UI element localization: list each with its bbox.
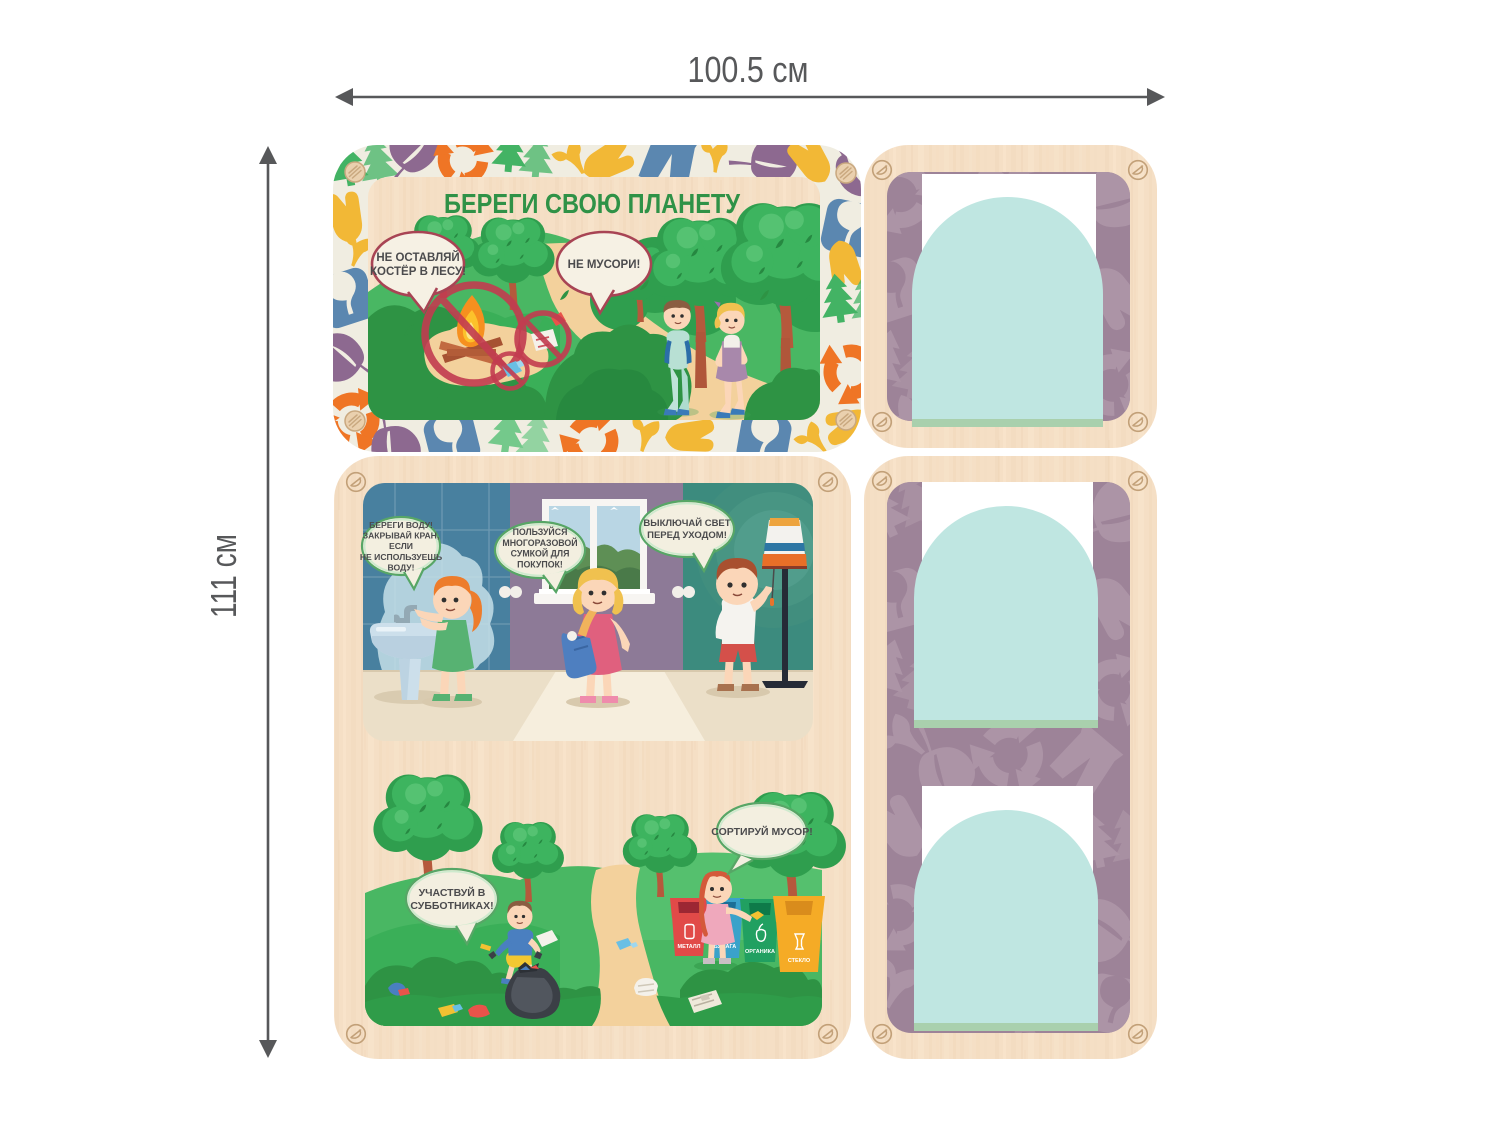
svg-text:ЗАКРЫВАЙ КРАН,: ЗАКРЫВАЙ КРАН, [363, 530, 440, 541]
svg-text:БЕРЕГИ ВОДУ!: БЕРЕГИ ВОДУ! [369, 520, 433, 530]
svg-text:УЧАСТВУЙ В: УЧАСТВУЙ В [419, 886, 486, 899]
svg-text:ПОКУПОК!: ПОКУПОК! [517, 559, 563, 569]
svg-text:БЕРЕГИ СВОЮ ПЛАНЕТУ: БЕРЕГИ СВОЮ ПЛАНЕТУ [444, 188, 740, 219]
svg-text:ВЫКЛЮЧАЙ СВЕТ: ВЫКЛЮЧАЙ СВЕТ [643, 517, 730, 529]
svg-text:КОСТЁР В ЛЕСУ!: КОСТЁР В ЛЕСУ! [370, 265, 466, 278]
svg-text:НЕ МУСОРИ!: НЕ МУСОРИ! [568, 259, 641, 271]
svg-text:СТЕКЛО: СТЕКЛО [788, 958, 811, 964]
svg-text:100.5 см: 100.5 см [688, 49, 809, 90]
svg-text:ЕСЛИ: ЕСЛИ [389, 541, 413, 551]
svg-text:ПЕРЕД УХОДОМ!: ПЕРЕД УХОДОМ! [647, 530, 727, 541]
svg-text:НЕ ОСТАВЛЯЙ: НЕ ОСТАВЛЯЙ [376, 251, 459, 264]
svg-text:НЕ ИСПОЛЬЗУЕШЬ: НЕ ИСПОЛЬЗУЕШЬ [360, 552, 442, 562]
svg-text:МНОГОРАЗОВОЙ: МНОГОРАЗОВОЙ [502, 537, 577, 548]
svg-text:111 см: 111 см [203, 534, 244, 618]
svg-text:ОРГАНИКА: ОРГАНИКА [745, 949, 775, 955]
svg-text:ПОЛЬЗУЙСЯ: ПОЛЬЗУЙСЯ [513, 526, 568, 537]
svg-text:ВОДУ!: ВОДУ! [388, 562, 415, 572]
svg-text:СУМКОЙ ДЛЯ: СУМКОЙ ДЛЯ [511, 548, 570, 559]
svg-text:МЕТАЛЛ: МЕТАЛЛ [677, 944, 700, 950]
svg-text:СОРТИРУЙ МУСОР!: СОРТИРУЙ МУСОР! [711, 825, 812, 838]
svg-text:СУББОТНИКАХ!: СУББОТНИКАХ! [410, 900, 493, 912]
